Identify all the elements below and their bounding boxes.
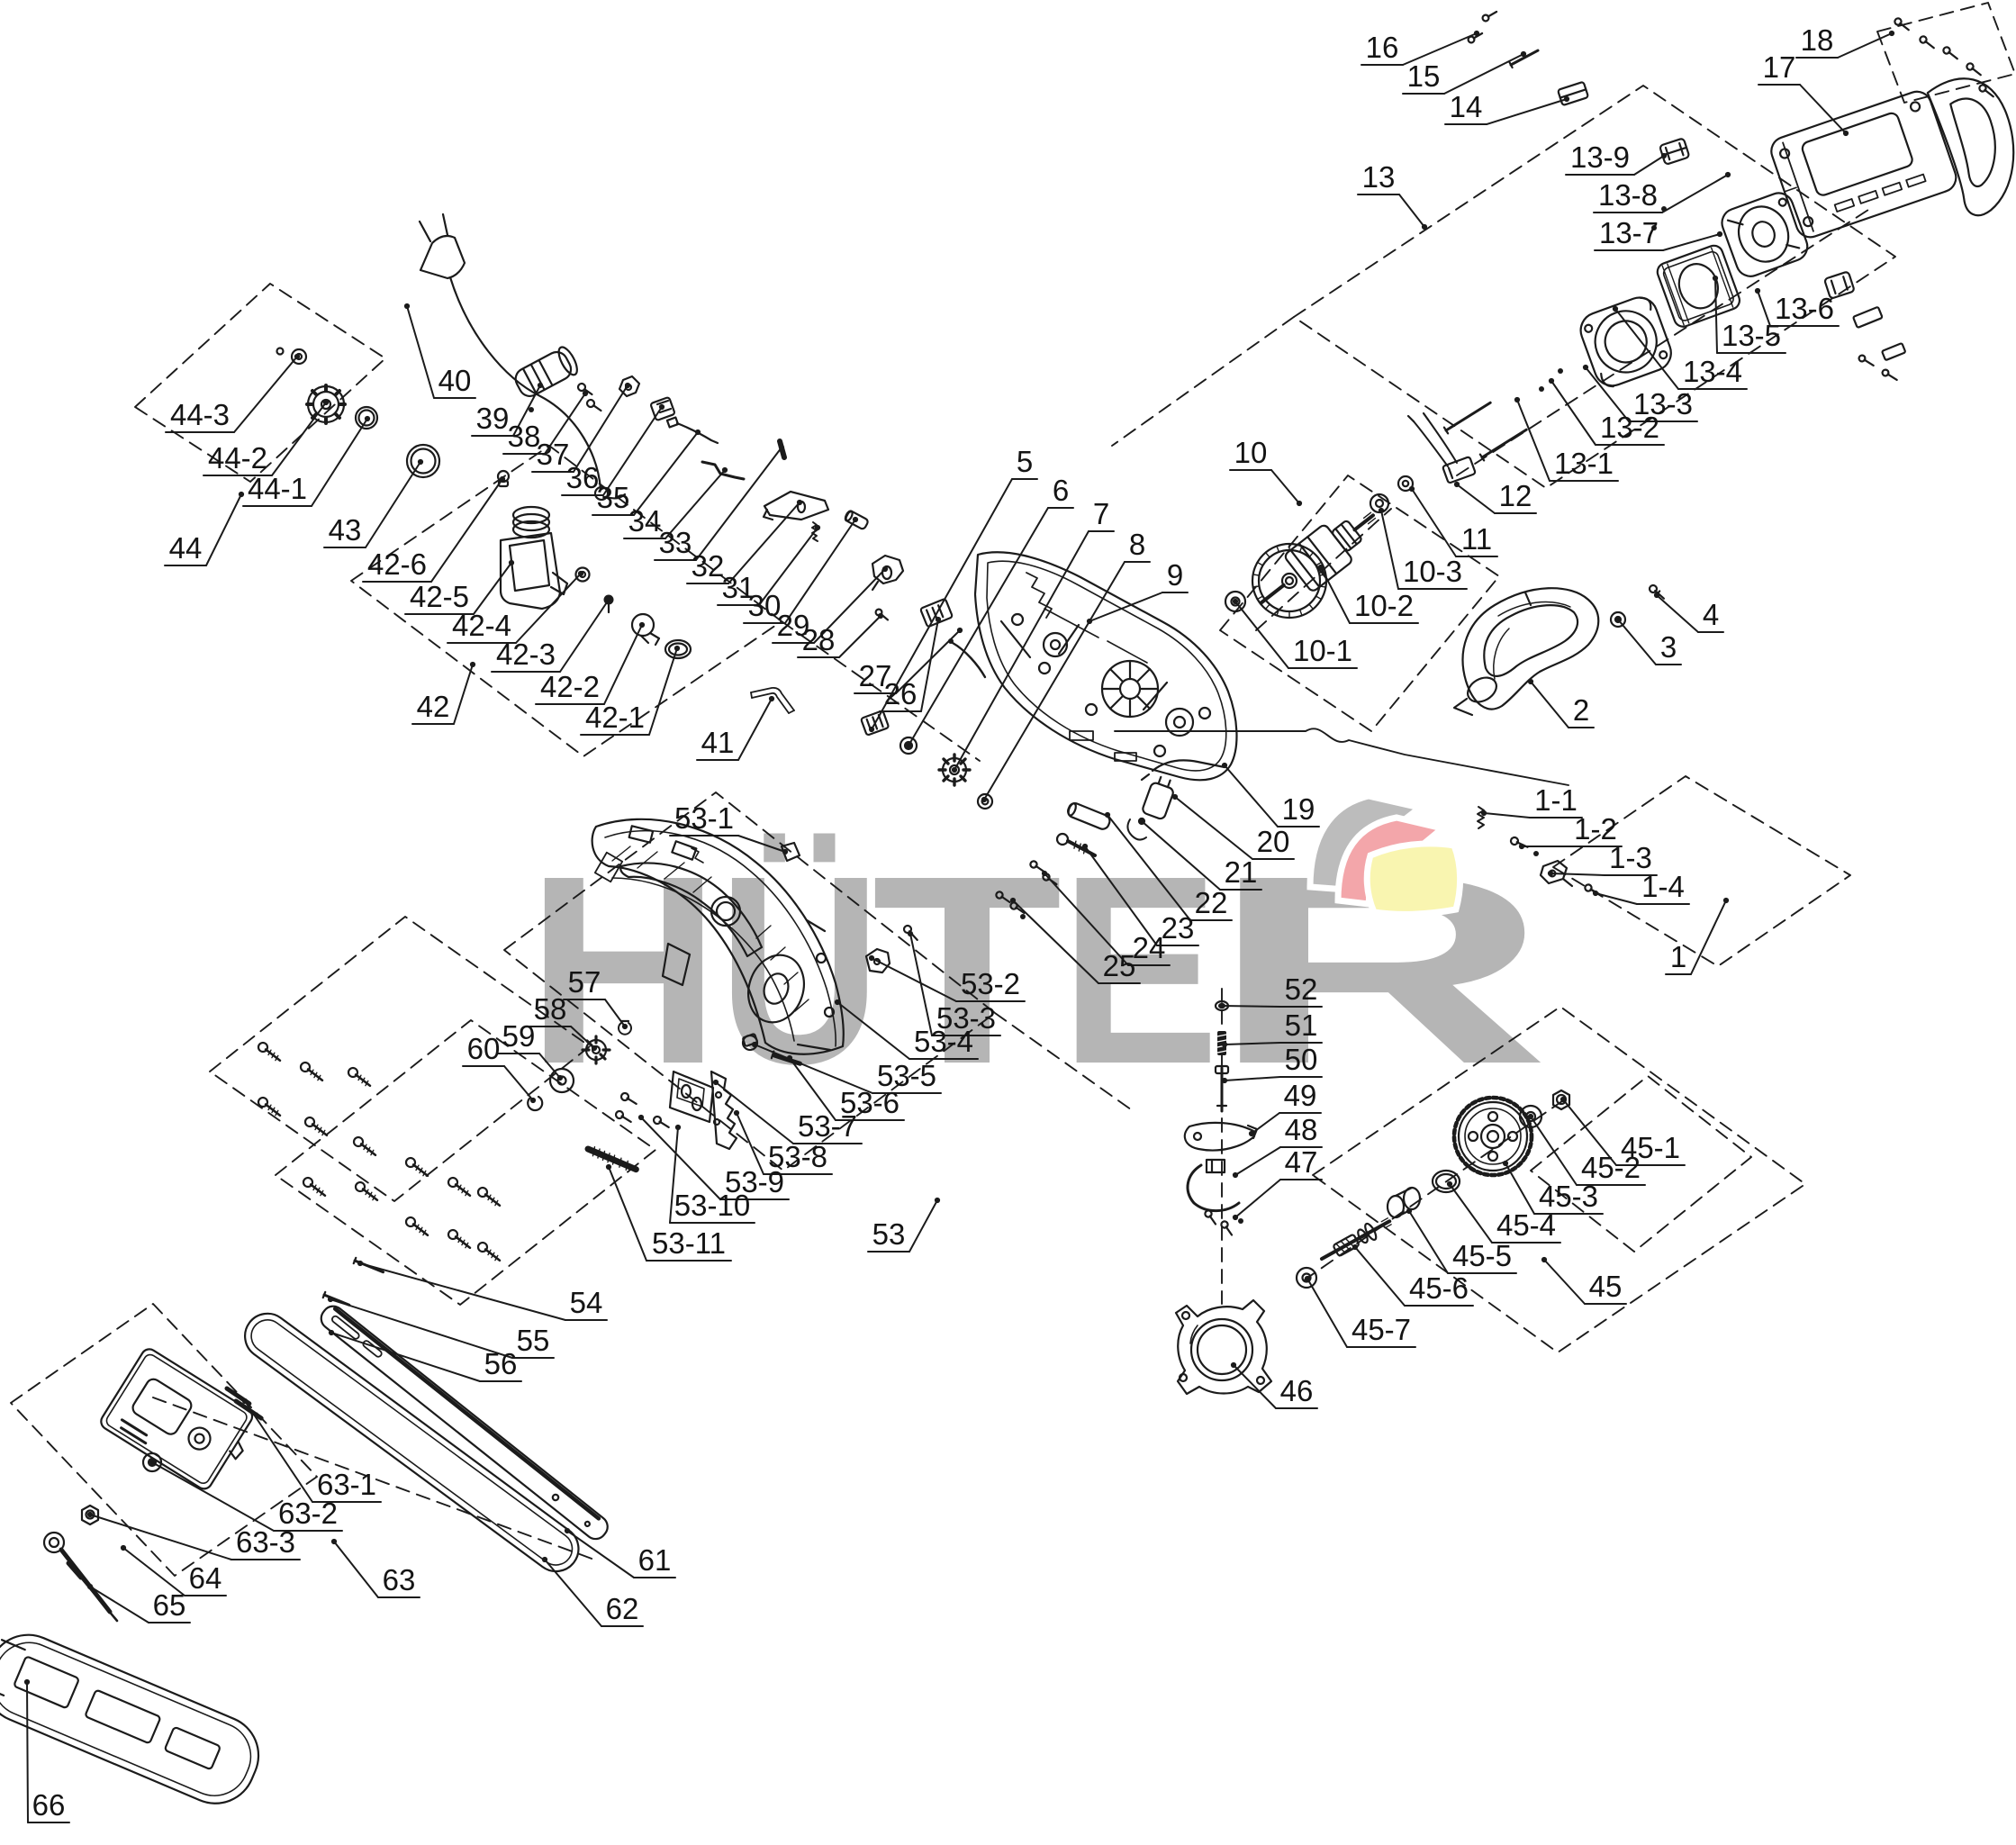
svg-text:13: 13 — [1362, 160, 1396, 194]
svg-text:15: 15 — [1407, 59, 1441, 93]
svg-text:62: 62 — [606, 1592, 639, 1625]
svg-text:33: 33 — [659, 526, 692, 559]
svg-text:36: 36 — [566, 461, 600, 494]
svg-text:47: 47 — [1285, 1145, 1318, 1179]
svg-text:13-8: 13-8 — [1598, 178, 1658, 212]
svg-text:35: 35 — [597, 481, 630, 514]
svg-text:55: 55 — [517, 1324, 550, 1357]
svg-text:6: 6 — [1053, 474, 1069, 507]
svg-text:3: 3 — [1660, 630, 1677, 664]
svg-text:25: 25 — [1103, 949, 1136, 982]
svg-text:45-7: 45-7 — [1352, 1313, 1411, 1346]
svg-text:7: 7 — [1093, 497, 1109, 530]
svg-text:10-2: 10-2 — [1354, 589, 1414, 622]
svg-text:21: 21 — [1225, 855, 1258, 889]
svg-text:54: 54 — [570, 1286, 603, 1319]
svg-text:57: 57 — [568, 965, 601, 999]
svg-text:20: 20 — [1257, 825, 1290, 858]
svg-text:50: 50 — [1285, 1043, 1318, 1076]
svg-text:53-4: 53-4 — [914, 1025, 973, 1058]
svg-text:5: 5 — [1017, 445, 1033, 478]
svg-text:42-3: 42-3 — [496, 638, 556, 671]
svg-text:45-6: 45-6 — [1409, 1271, 1469, 1305]
svg-text:53-7: 53-7 — [798, 1109, 857, 1143]
svg-text:18: 18 — [1801, 23, 1834, 57]
svg-text:26: 26 — [884, 677, 918, 710]
svg-text:12: 12 — [1499, 479, 1532, 512]
svg-text:22: 22 — [1195, 886, 1228, 919]
svg-text:58: 58 — [534, 992, 567, 1026]
svg-text:53-2: 53-2 — [961, 967, 1020, 1000]
svg-text:2: 2 — [1573, 693, 1589, 727]
svg-text:44-3: 44-3 — [170, 398, 230, 431]
svg-text:19: 19 — [1282, 792, 1315, 826]
svg-text:4: 4 — [1703, 598, 1719, 631]
svg-text:44: 44 — [169, 531, 203, 565]
svg-text:63-3: 63-3 — [236, 1525, 295, 1559]
svg-text:39: 39 — [476, 402, 510, 435]
svg-text:17: 17 — [1763, 50, 1796, 84]
svg-text:53-11: 53-11 — [652, 1226, 726, 1260]
svg-text:13-2: 13-2 — [1600, 411, 1659, 444]
svg-text:64: 64 — [189, 1561, 222, 1595]
svg-text:63: 63 — [383, 1563, 416, 1596]
svg-text:34: 34 — [628, 504, 662, 538]
svg-text:13-1: 13-1 — [1554, 447, 1614, 480]
svg-text:46: 46 — [1280, 1374, 1314, 1407]
svg-text:44-1: 44-1 — [248, 472, 307, 505]
svg-text:53-10: 53-10 — [674, 1189, 750, 1222]
svg-text:10: 10 — [1234, 436, 1268, 469]
svg-text:13-6: 13-6 — [1775, 292, 1834, 325]
svg-text:60: 60 — [467, 1032, 501, 1065]
svg-text:13-9: 13-9 — [1570, 140, 1630, 174]
svg-text:53-1: 53-1 — [674, 801, 734, 835]
svg-text:23: 23 — [1162, 911, 1195, 945]
svg-text:32: 32 — [692, 549, 725, 583]
svg-text:44-2: 44-2 — [208, 441, 267, 475]
svg-text:56: 56 — [484, 1347, 518, 1380]
svg-text:42: 42 — [417, 690, 450, 723]
svg-text:13-7: 13-7 — [1599, 216, 1659, 249]
svg-text:48: 48 — [1285, 1113, 1318, 1146]
svg-text:10-1: 10-1 — [1293, 634, 1352, 667]
svg-text:8: 8 — [1129, 528, 1145, 561]
svg-text:11: 11 — [1461, 522, 1492, 556]
svg-text:24: 24 — [1133, 931, 1166, 964]
svg-text:40: 40 — [438, 364, 472, 397]
svg-text:45-4: 45-4 — [1496, 1208, 1556, 1242]
svg-text:42-2: 42-2 — [540, 670, 600, 703]
svg-text:49: 49 — [1284, 1079, 1317, 1112]
svg-text:42-6: 42-6 — [367, 547, 427, 581]
svg-text:1-1: 1-1 — [1534, 783, 1578, 817]
svg-text:65: 65 — [153, 1588, 186, 1622]
svg-text:13-4: 13-4 — [1683, 355, 1742, 388]
svg-text:52: 52 — [1285, 972, 1318, 1006]
svg-text:41: 41 — [701, 726, 735, 759]
svg-text:66: 66 — [32, 1788, 66, 1822]
svg-text:59: 59 — [502, 1019, 536, 1053]
svg-text:28: 28 — [802, 623, 836, 656]
svg-text:9: 9 — [1167, 558, 1183, 592]
svg-text:16: 16 — [1366, 31, 1399, 64]
svg-text:45: 45 — [1589, 1270, 1623, 1303]
svg-text:45-5: 45-5 — [1452, 1239, 1512, 1272]
svg-text:53: 53 — [872, 1217, 906, 1251]
svg-text:43: 43 — [329, 513, 362, 547]
svg-text:10-3: 10-3 — [1403, 555, 1462, 588]
svg-text:14: 14 — [1450, 90, 1483, 123]
svg-text:1: 1 — [1670, 940, 1686, 973]
svg-text:61: 61 — [638, 1543, 672, 1577]
svg-text:42-1: 42-1 — [585, 701, 645, 734]
svg-text:1-4: 1-4 — [1641, 870, 1685, 903]
svg-text:51: 51 — [1285, 1008, 1318, 1042]
svg-text:37: 37 — [537, 438, 570, 471]
svg-text:13-5: 13-5 — [1722, 319, 1781, 352]
